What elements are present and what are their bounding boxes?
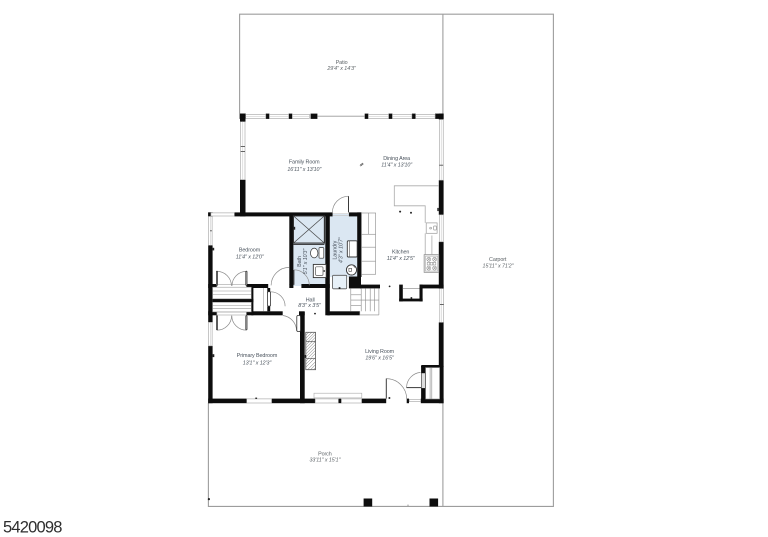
svg-text:16'11" x 13'10": 16'11" x 13'10" [287,167,322,173]
svg-text:5'1" x 10'3": 5'1" x 10'3" [303,248,309,275]
svg-text:5420098: 5420098 [3,518,62,536]
svg-text:33'11" x 15'1": 33'11" x 15'1" [309,457,341,463]
svg-text:Dining Area: Dining Area [383,156,410,162]
svg-text:13'1" x 12'3": 13'1" x 12'3" [243,360,273,366]
svg-text:Living Room: Living Room [365,349,394,355]
svg-text:11'4" x 12'0": 11'4" x 12'0" [236,254,265,260]
svg-text:11'4" x 13'10": 11'4" x 13'10" [381,162,413,168]
svg-text:Primary Bedroom: Primary Bedroom [237,353,278,359]
svg-text:15'11" x 71'2": 15'11" x 71'2" [483,263,515,269]
svg-text:Kitchen: Kitchen [392,249,409,255]
svg-text:8'3" x 3'5": 8'3" x 3'5" [298,303,322,309]
svg-text:29'4" x 14'3": 29'4" x 14'3" [326,66,357,72]
svg-text:4'3" x 10'7": 4'3" x 10'7" [338,236,344,263]
svg-text:Carport: Carport [489,257,507,263]
svg-text:Family Room: Family Room [289,160,320,166]
svg-text:19'6" x 16'5": 19'6" x 16'5" [365,356,395,362]
svg-text:11'4" x 12'5": 11'4" x 12'5" [387,256,416,262]
svg-text:Bedroom: Bedroom [239,248,261,254]
